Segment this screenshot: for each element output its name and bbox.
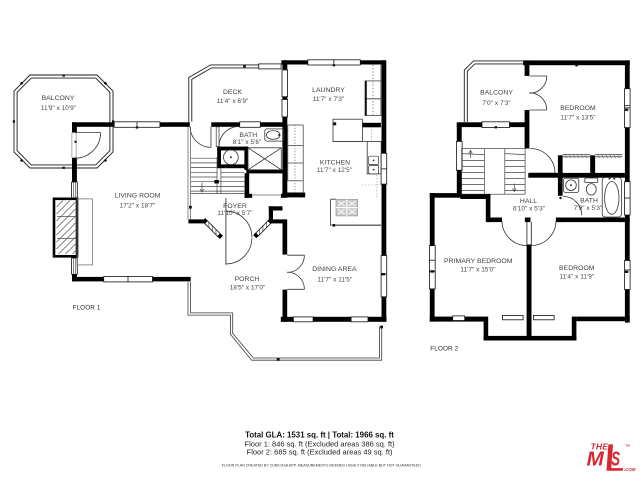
svg-text:TM: TM: [625, 444, 630, 448]
svg-text:18'5" x 17'0": 18'5" x 17'0": [230, 285, 266, 292]
svg-text:LAUNDRY: LAUNDRY: [312, 87, 345, 94]
svg-text:FLOOR 1: FLOOR 1: [73, 305, 101, 312]
svg-text:BEDROOM: BEDROOM: [559, 265, 595, 272]
svg-text:BEDROOM: BEDROOM: [560, 105, 596, 112]
svg-text:DECK: DECK: [223, 89, 243, 96]
svg-text:7'9" x 5'3": 7'9" x 5'3": [574, 205, 603, 212]
svg-text:FLOOR PLAN CREATED BY CUBICASA: FLOOR PLAN CREATED BY CUBICASA APP. MEAS…: [222, 464, 422, 468]
svg-text:11'10" x 5'7": 11'10" x 5'7": [217, 210, 252, 217]
svg-text:BALCONY: BALCONY: [42, 95, 75, 102]
svg-text:11'7" x 15'0": 11'7" x 15'0": [460, 266, 495, 273]
svg-text:BALCONY: BALCONY: [480, 90, 513, 97]
svg-text:KITCHEN: KITCHEN: [320, 160, 350, 167]
svg-text:8'1" x 5'6": 8'1" x 5'6": [233, 139, 262, 146]
svg-text:7'0" x 7'3": 7'0" x 7'3": [482, 100, 511, 107]
svg-text:PORCH: PORCH: [235, 276, 260, 283]
svg-text:6'10" x 5'3": 6'10" x 5'3": [513, 205, 545, 212]
svg-text:FLOOR 2: FLOOR 2: [430, 345, 458, 352]
svg-text:BATH: BATH: [580, 197, 598, 204]
svg-text:11'4" x 6'9": 11'4" x 6'9": [217, 98, 249, 105]
svg-text:PRIMARY BEDROOM: PRIMARY BEDROOM: [444, 258, 513, 265]
svg-text:FOYER: FOYER: [223, 203, 247, 210]
svg-text:11'9" x 10'9": 11'9" x 10'9": [41, 105, 76, 112]
svg-text:Floor 2: 685 sq. ft (Excluded: Floor 2: 685 sq. ft (Excluded areas 49 s…: [247, 448, 393, 457]
svg-text:BATH: BATH: [239, 132, 257, 139]
svg-text:11'7" x 13'5": 11'7" x 13'5": [560, 115, 595, 122]
svg-text:LIVING ROOM: LIVING ROOM: [115, 193, 161, 200]
svg-text:11'7" x 11'5": 11'7" x 11'5": [317, 277, 352, 284]
svg-text:Total GLA: 1531 sq. ft | Total: Total GLA: 1531 sq. ft | Total: 1966 sq.…: [245, 430, 394, 439]
svg-text:17'2" x 18'7": 17'2" x 18'7": [120, 202, 156, 209]
svg-text:DINING AREA: DINING AREA: [312, 266, 357, 273]
svg-text:11'7" x 7'3": 11'7" x 7'3": [313, 96, 345, 103]
svg-text:HALL: HALL: [520, 198, 537, 205]
svg-text:11'4" x 11'9": 11'4" x 11'9": [559, 273, 594, 280]
svg-text:.COM: .COM: [624, 467, 636, 472]
svg-text:11'7" x 12'5": 11'7" x 12'5": [317, 167, 352, 174]
svg-text:M: M: [587, 448, 605, 471]
